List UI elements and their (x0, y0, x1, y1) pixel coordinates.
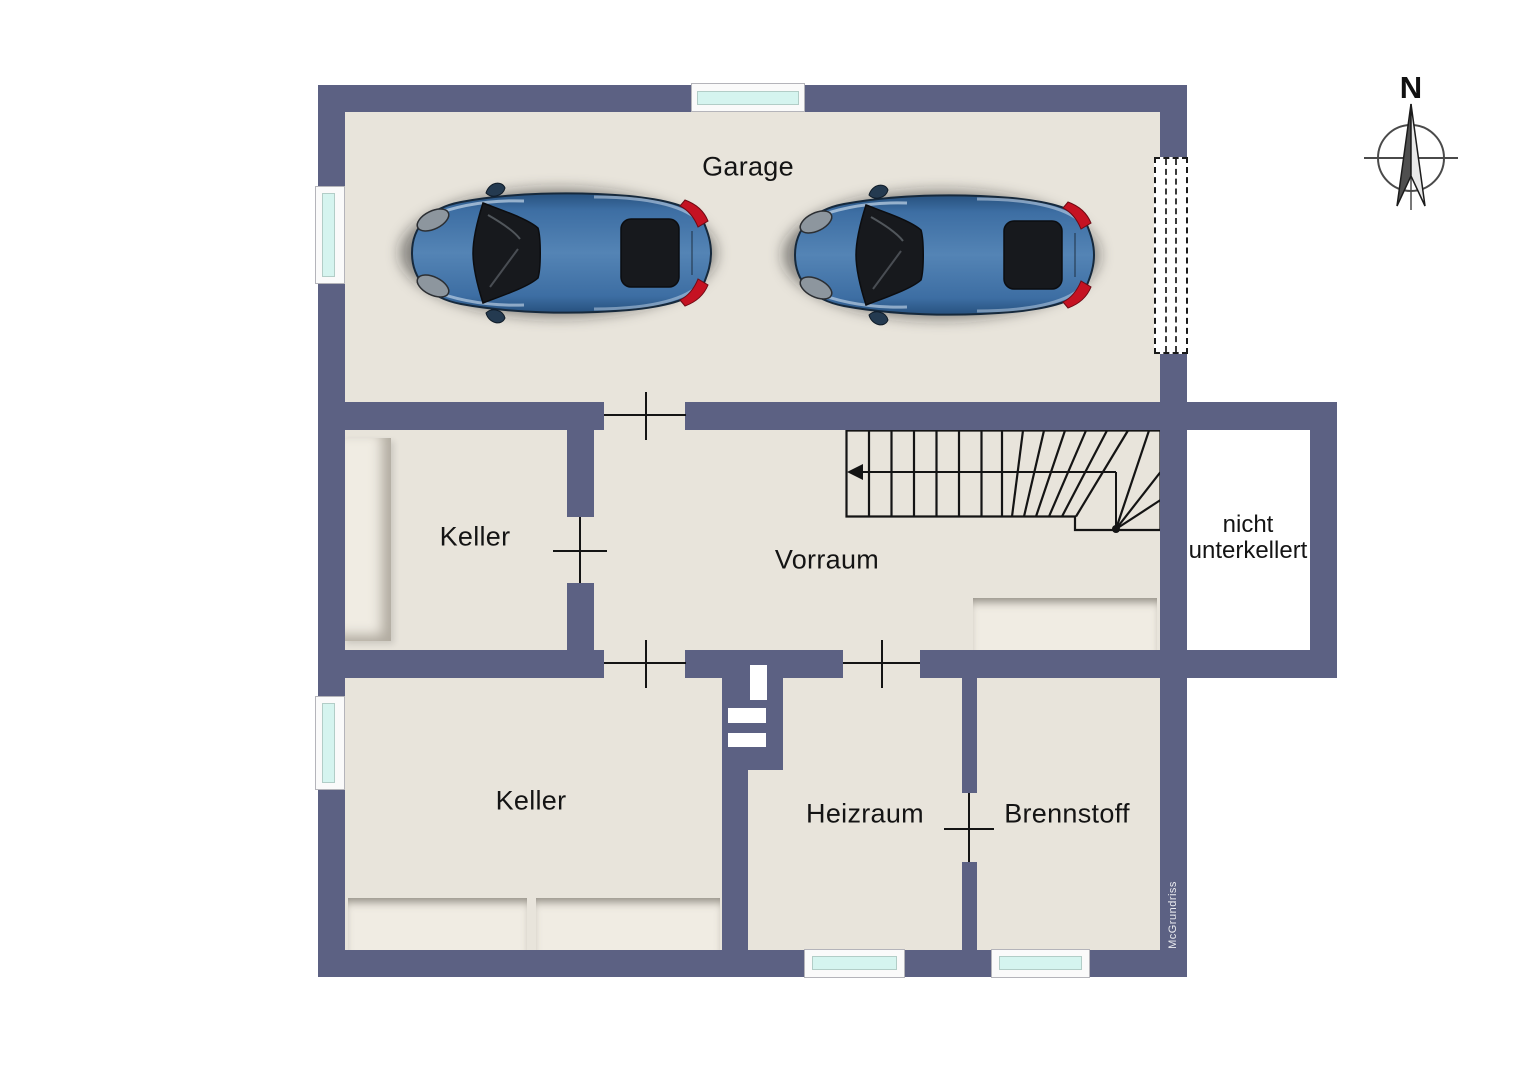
compass-n-label: N (1400, 70, 1422, 105)
chimney-flue-1 (750, 665, 767, 700)
floor-plan: Garage Keller Vorraum Keller Heizraum Br… (0, 0, 1536, 1086)
room-label-keller-lower: Keller (496, 786, 567, 817)
garage-door (1154, 157, 1188, 354)
room-label-heizraum: Heizraum (806, 799, 924, 830)
room-label-garage: Garage (702, 152, 794, 183)
wall-keller-upper-east-b (567, 583, 594, 650)
door-tick (645, 392, 647, 440)
wall-keller-upper-east-a (567, 430, 594, 517)
wall-mid-south-a (345, 650, 604, 678)
shelf-keller-lower-2 (536, 898, 720, 950)
window-glass (322, 703, 335, 783)
stair-direction-arrow (847, 464, 863, 480)
staircase (845, 429, 1162, 533)
wall-garage-south-b (685, 402, 1337, 430)
window-glass (812, 956, 897, 970)
shelf-keller-lower-1 (348, 898, 527, 950)
window-glass (999, 956, 1082, 970)
car-right (781, 177, 1101, 333)
window-glass (697, 91, 799, 105)
room-label-keller-upper: Keller (440, 522, 511, 553)
room-label-brennstoff: Brennstoff (1004, 799, 1130, 830)
chimney-flue-2 (728, 708, 766, 723)
watermark-mcgrundriss: McGrundriss (1167, 881, 1179, 949)
room-label-annex: nicht unterkellert (1178, 512, 1318, 564)
room-label-vorraum: Vorraum (775, 545, 879, 576)
door-tick (881, 640, 883, 688)
stair-walkline (855, 472, 1116, 529)
window-glass (322, 193, 335, 277)
car-left (398, 175, 718, 331)
shelf-keller-upper (343, 438, 391, 641)
compass-north-indicator: N (1364, 66, 1458, 216)
counter-vorraum (973, 598, 1157, 650)
door-tick (553, 550, 607, 552)
wall-heizraum-brennstoff-b (962, 862, 977, 950)
wall-garage-south-a (345, 402, 604, 430)
chimney-flue-3 (728, 733, 766, 747)
wall-heizraum-brennstoff-a (962, 678, 977, 793)
wall-mid-south-c (920, 650, 1337, 678)
door-tick (645, 640, 647, 688)
door-tick (944, 828, 994, 830)
